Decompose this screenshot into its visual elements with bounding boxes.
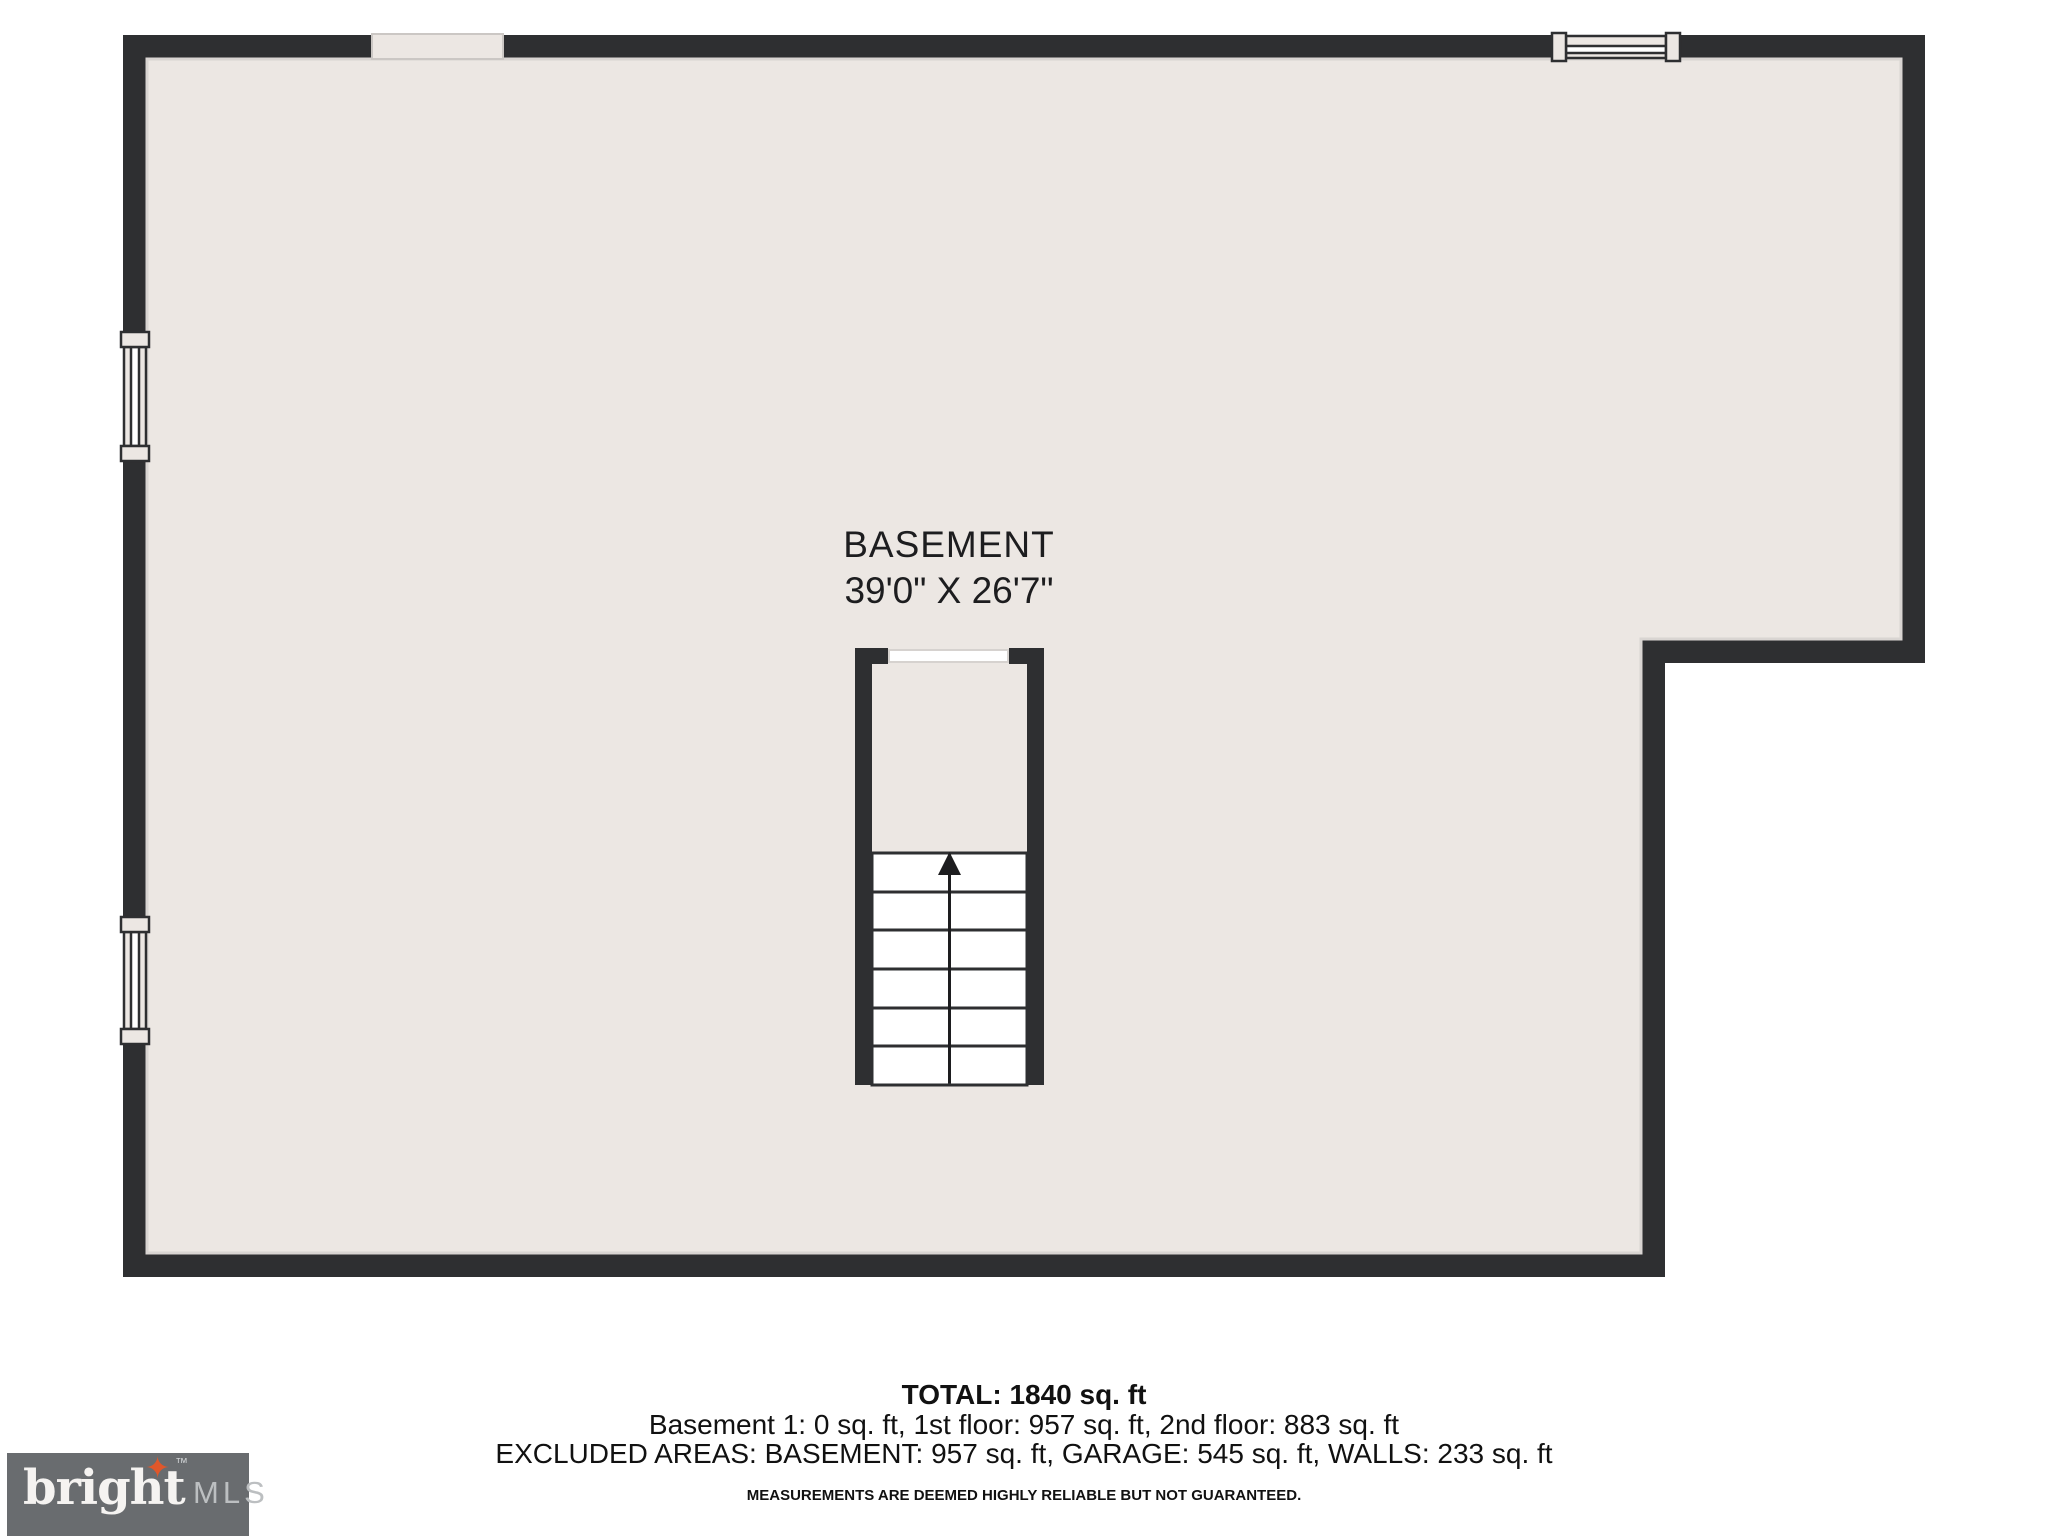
excluded-areas-text: EXCLUDED AREAS: BASEMENT: 957 sq. ft, GA… <box>0 1438 2048 1470</box>
floor-breakdown-text: Basement 1: 0 sq. ft, 1st floor: 957 sq.… <box>0 1409 2048 1441</box>
floor-plan-page: BASEMENT 39'0" X 26'7" TOTAL: 1840 sq. f… <box>0 0 2048 1536</box>
room-dimensions: 39'0" X 26'7" <box>449 570 1449 612</box>
wall-opening <box>372 34 503 59</box>
floor-plan-drawing <box>0 0 2048 1536</box>
room-label: BASEMENT <box>449 524 1449 566</box>
stair-opening <box>889 650 1008 662</box>
brightmls-logo: bright ✦ ™ MLS <box>7 1453 249 1536</box>
window-top-icon <box>1552 33 1680 61</box>
stair-stub-left <box>855 648 888 664</box>
total-area-text: TOTAL: 1840 sq. ft <box>0 1379 2048 1411</box>
stair-wall-left <box>855 648 872 1085</box>
window-left-upper-icon <box>121 332 149 461</box>
window-left-lower-icon <box>121 917 149 1044</box>
disclaimer-text: MEASUREMENTS ARE DEEMED HIGHLY RELIABLE … <box>0 1487 2048 1504</box>
stair-stub-right <box>1009 648 1044 664</box>
sparkle-icon: ✦ <box>145 1451 170 1486</box>
logo-trademark: ™ <box>175 1455 188 1470</box>
logo-mls-text: MLS <box>193 1475 269 1511</box>
stair-wall-right <box>1027 648 1044 1085</box>
